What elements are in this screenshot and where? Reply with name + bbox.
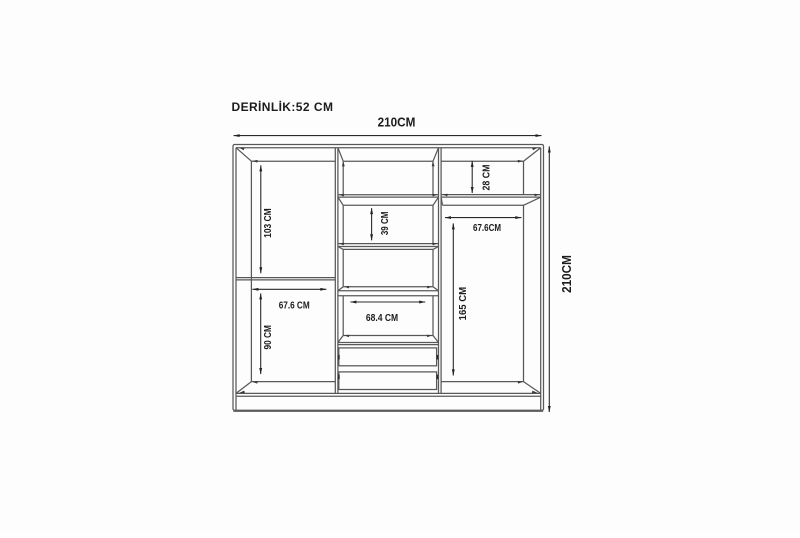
svg-text:103 CM: 103 CM bbox=[263, 208, 274, 238]
svg-text:165 CM: 165 CM bbox=[458, 287, 469, 321]
svg-text:68.4 CM: 68.4 CM bbox=[366, 313, 398, 324]
svg-text:90 CM: 90 CM bbox=[263, 325, 274, 350]
svg-text:210CM: 210CM bbox=[378, 114, 416, 129]
svg-text:67.6CM: 67.6CM bbox=[473, 223, 501, 234]
svg-text:67.6 CM: 67.6 CM bbox=[279, 300, 310, 311]
svg-text:28 CM: 28 CM bbox=[482, 165, 493, 191]
svg-text:DERİNLİK:52CM: DERİNLİK:52CM bbox=[232, 99, 334, 114]
svg-text:39 CM: 39 CM bbox=[380, 212, 391, 236]
svg-text:210CM: 210CM bbox=[559, 255, 574, 293]
